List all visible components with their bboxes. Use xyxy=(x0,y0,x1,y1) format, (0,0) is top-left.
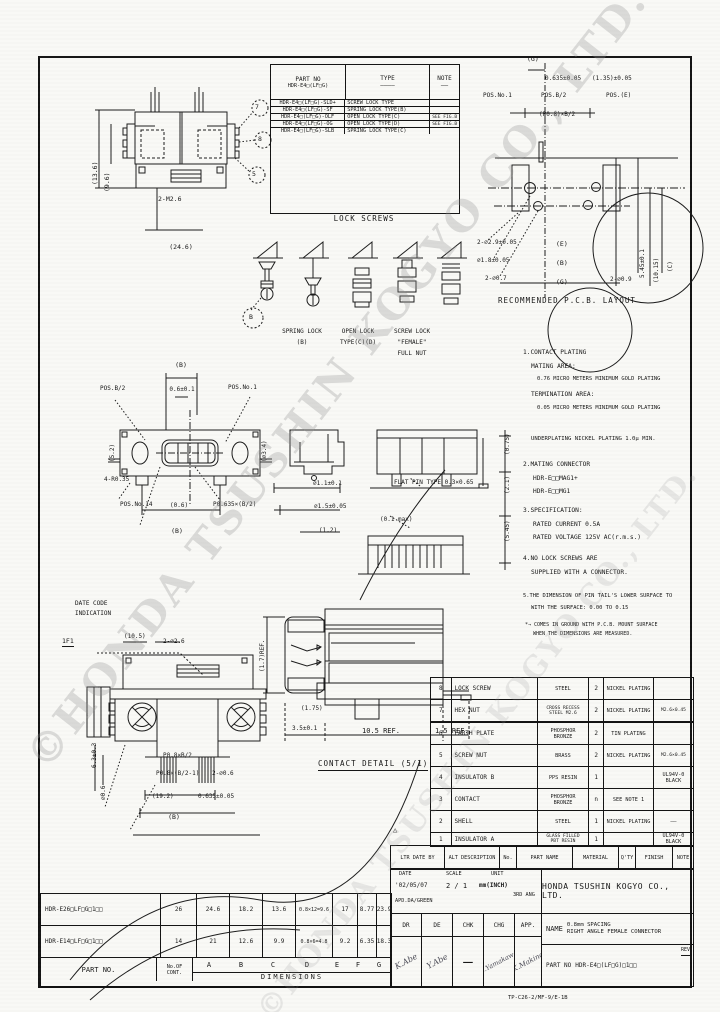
projection-value: 3RD ANG xyxy=(513,893,535,899)
screw-fig-3 xyxy=(348,242,378,307)
part-row-note xyxy=(654,678,693,699)
dimensions-table: HDR-E26□LF□G□1□□ 26 24.6 18.2 13.6 0.8×1… xyxy=(40,893,392,987)
dim-row-f: 8.77 xyxy=(358,894,377,925)
front-pos-no14: POS.No.14 xyxy=(120,502,153,509)
dim-header-cont2: CONT. xyxy=(167,970,183,976)
flat-pin-label: FLAT PIN TYPE 0.3×0.65 xyxy=(394,480,473,487)
note-line: WHEN THE DIMENSIONS ARE MEASURED. xyxy=(533,632,632,638)
part-row-material: STEEL xyxy=(538,811,590,832)
dim-row-n: 26 xyxy=(161,894,197,925)
topview-dim-96: (9.6) xyxy=(104,172,111,192)
rear-dim-2d26: 2-⌀2.6 xyxy=(163,639,185,646)
part-row-material-2: BRONZE xyxy=(554,734,573,740)
chg-header: CHG xyxy=(484,914,515,936)
strip-alt-description: ALT DESCRIPTION xyxy=(445,846,500,869)
part-row-name: INSULATOR A xyxy=(452,833,538,845)
strip-part-name: PART NAME xyxy=(517,846,573,869)
dim-row-d: 0.8×6=4.8 xyxy=(296,926,333,957)
caption-open-lock-type: TYPE(C)(D) xyxy=(340,340,376,347)
topview-dim-136: (13.6) xyxy=(92,162,99,185)
pcb-dim-0635: 0.635±0.05 xyxy=(545,76,581,83)
dim-col-d: D xyxy=(289,958,325,972)
lock-table-header-type-dash: ———— xyxy=(380,82,394,89)
dr-header: DR xyxy=(391,914,422,936)
app-header: APP. xyxy=(515,914,541,936)
topview-dim-2m26: 2-M2.6 xyxy=(158,196,181,203)
rear-dim-b: (B) xyxy=(168,814,180,821)
rear-dim-192: (19.2) xyxy=(152,794,174,801)
part-row-finish: NICKEL PLATING xyxy=(604,811,654,832)
note-line: 3.SPECIFICATION: xyxy=(523,508,583,515)
dim-row-a: 24.6 xyxy=(197,894,230,925)
caption-screw-lock: SCREW LOCK xyxy=(394,329,430,336)
part-row-finish: NICKEL PLATING xyxy=(604,745,654,766)
front-pos-no1: POS.No.1 xyxy=(228,385,257,392)
signature-dr: K.Abe xyxy=(393,952,419,971)
front-dim-p0635: P0.635×(B/2) xyxy=(213,502,256,509)
caption-spring-lock-b: (B) xyxy=(297,340,308,347)
contact-dim-15: 1.5 REF. xyxy=(435,727,469,735)
unit-value: mm(INCH) xyxy=(479,883,508,890)
note-line: HDR-E□□MG1 xyxy=(533,489,570,496)
dim-row-e: 17 xyxy=(333,894,358,925)
pcb-pos-b2: POS.B/2 xyxy=(541,93,566,100)
detail-balloon-b: B xyxy=(249,314,253,321)
revision-header-strip: LTR DATE BY ALT DESCRIPTION No. PART NAM… xyxy=(390,845,694,870)
note-line: 4.NO LOCK SCREWS ARE xyxy=(523,556,598,563)
balloon-7: 7 xyxy=(255,104,259,111)
note-line: 5.THE DIMENSION OF PIN TAIL'S LOWER SURF… xyxy=(523,594,672,600)
pcb-layout-caption: RECOMMENDED P.C.B. LAYOUT xyxy=(498,297,636,306)
lock-row-type: SPRING LOCK TYPE(C) xyxy=(345,128,430,134)
lock-screw-figures xyxy=(245,238,473,338)
dim-row-b: 18.2 xyxy=(230,894,263,925)
rear-dim-105: (10.5) xyxy=(124,634,146,641)
front-dim-b-top: (B) xyxy=(175,362,187,369)
strip-qty: Q'TY xyxy=(619,846,636,869)
side-dim-d11: ⌀1.1±0.1 xyxy=(313,481,342,488)
part-row-finish xyxy=(604,833,654,845)
strip-ltr-date-by: LTR DATE BY xyxy=(391,846,445,869)
front-dim-52: (5.2) xyxy=(110,444,117,462)
dim-row-g: 23.9 xyxy=(377,894,391,925)
strip-no: No. xyxy=(500,846,517,869)
part-row-name: LOCK SCREW xyxy=(452,678,538,699)
pcb-dim-b: (B) xyxy=(556,260,568,267)
pcb-pos-e: POS.(E) xyxy=(606,93,631,100)
strip-material: MATERIAL xyxy=(573,846,619,869)
dim-row-part: HDR-E14□LF□G□1□□ xyxy=(41,926,161,957)
part-row-note: UL94V-0 BLACK xyxy=(654,767,693,788)
part-row-material: BRASS xyxy=(538,745,590,766)
dim-row-n: 14 xyxy=(161,926,197,957)
parts-list-table: 8 LOCK SCREW STEEL 2 NICKEL PLATING 7 HE… xyxy=(430,677,694,847)
front-view-drawing xyxy=(100,355,285,545)
dim-header-partno: PART NO. xyxy=(41,958,157,981)
lock-row-note: SEE FIG.B xyxy=(430,121,459,127)
part-row-note: M2.6×0.45 xyxy=(654,700,693,721)
note-line: SUPPLIED WITH A CONNECTOR. xyxy=(531,570,628,577)
part-row-finish: TIN PLATING xyxy=(604,723,654,744)
part-row-no: 3 xyxy=(431,789,452,810)
contact-detail-caption: CONTACT DETAIL (5/1) xyxy=(318,760,428,771)
caption-open-lock: OPEN LOCK xyxy=(342,329,375,336)
pcb-dim-d18: ⌀1.8±0.05 xyxy=(477,258,510,265)
part-row-qty: 2 xyxy=(589,678,604,699)
part-row-material-2: BRONZE xyxy=(554,800,573,806)
scale-value: 2 / 1 xyxy=(446,882,467,890)
front-dim-4r035: 4-R0.35 xyxy=(104,477,129,484)
contact-dim-17ref: (1.7)REF. xyxy=(260,639,267,672)
dim-col-f: F xyxy=(349,958,367,972)
scale-header: SCALE xyxy=(446,872,462,878)
unit-header: UNIT xyxy=(491,872,504,878)
part-name-line2: RIGHT ANGLE FEMALE CONNECTOR xyxy=(567,929,661,936)
pcb-dim-2d09: 2-⌀0.9 xyxy=(610,277,632,284)
rev-label: REV xyxy=(681,948,690,956)
strip-note: NOTE xyxy=(673,846,693,869)
side-view-drawing xyxy=(270,408,515,598)
date-code-label-2: INDICATION xyxy=(75,611,111,618)
dim-row-part: HDR-E26□LF□G□1□□ xyxy=(41,894,161,925)
side-dim-12: (1.2) xyxy=(319,528,337,535)
note-line: 0.05 MICRO METERS MINIMUM GOLD PLATING xyxy=(537,406,660,412)
dim-row-c: 9.9 xyxy=(263,926,296,957)
note-line: RATED CURRENT 0.5A xyxy=(533,522,600,529)
subline-value: APD.DA/GREEN xyxy=(395,899,432,905)
part-row-note xyxy=(654,789,693,810)
part-row-no: 1 xyxy=(431,833,452,845)
rear-dim-63: 6.3±0.3 xyxy=(92,743,99,768)
signature-de: Y.Abe xyxy=(425,952,449,970)
side-dim-d15: ⌀1.5±0.05 xyxy=(314,504,347,511)
pcb-pos-no1: POS.No.1 xyxy=(483,93,512,100)
dim-col-e: E xyxy=(325,958,349,972)
footer-document-code: TP-C26-2/MF-9/E-1B xyxy=(508,995,568,1001)
part-row-no: 2 xyxy=(431,811,452,832)
part-row-qty: n xyxy=(589,789,604,810)
side-dim-01max: (0.1 max) xyxy=(380,517,413,524)
balloon-8: 8 xyxy=(258,136,262,143)
front-pos-b2: POS.B/2 xyxy=(100,386,125,393)
dim-col-a: A xyxy=(193,958,225,972)
lock-row-part: HDR-E4□(LF□G)-SF xyxy=(271,107,345,113)
pcb-dim-g: (G) xyxy=(556,279,568,286)
part-name-line1: 0.8mm SPACING xyxy=(567,922,661,929)
note-line: RATED VOLTAGE 125V AC(r.m.s.) xyxy=(533,535,641,542)
dim-row-d: 0.8×12=9.6 xyxy=(296,894,333,925)
lock-screws-table: PART NO HDR-E4□(LF□G) TYPE ———— NOTE —— … xyxy=(270,64,460,214)
part-row-name: CONTACT xyxy=(452,789,538,810)
part-row-qty: 2 xyxy=(589,700,604,721)
lock-screws-caption: LOCK SCREWS xyxy=(334,215,395,224)
dim-row-g: 18.3 xyxy=(377,926,391,957)
note-line: UNDERPLATING NICKEL PLATING 1.0μ MIN. xyxy=(531,436,656,442)
note-line: TERMINATION AREA: xyxy=(531,392,594,399)
dimensions-label: DIMENSIONS xyxy=(193,973,391,981)
date-code-value: 1F1 xyxy=(62,638,74,647)
part-row-finish xyxy=(604,767,654,788)
pcb-dim-g-top: (G) xyxy=(527,56,539,63)
part-row-finish: SEE NOTE 1 xyxy=(604,789,654,810)
de-header: DE xyxy=(422,914,453,936)
strip-finish: FINISH xyxy=(636,846,673,869)
lock-row-part: HDR-E4□(LF□G)-SLD+ xyxy=(271,100,345,106)
screw-fig-4 xyxy=(393,242,423,302)
date-code-label-1: DATE CODE xyxy=(75,601,108,608)
lock-row-note: SEE FIG.B xyxy=(430,114,459,120)
note-line: *→ COMES IN GROUND WITH P.C.B. MOUNT SUR… xyxy=(525,623,657,629)
signature-app: K.Makino xyxy=(515,950,541,973)
partno-header: PART NO xyxy=(542,962,575,969)
caption-spring-lock: SPRING LOCK xyxy=(282,329,322,336)
screw-fig-2 xyxy=(299,242,329,306)
part-row-qty: 1 xyxy=(589,811,604,832)
part-row-qty: 1 xyxy=(589,833,604,845)
side-dim-545: (5.45) xyxy=(505,520,512,542)
dim-col-c: C xyxy=(257,958,289,972)
lock-row-type: SPRING LOCK TYPE(B) xyxy=(345,107,430,113)
topview-drawing xyxy=(85,80,275,260)
lock-table-header-partno2: HDR-E4□(LF□G) xyxy=(288,83,329,89)
lock-row-part: HDR-E4□(LF□G)-SLB xyxy=(271,128,345,134)
part-row-name: INSULATOR B xyxy=(452,767,538,788)
pcb-dim-2d29: 2-⌀2.9±0.05 xyxy=(477,240,517,247)
note-line: HDR-E□□MAG1+ xyxy=(533,476,578,483)
signature-chg: S.Yamakawa xyxy=(484,948,515,974)
caption-screw-lock-female: "FEMALE" xyxy=(398,340,427,347)
contact-dim-35: 3.5±0.1 xyxy=(292,726,317,733)
dim-row-f: 6.35 xyxy=(358,926,377,957)
lock-table-header-note-dash: —— xyxy=(441,82,448,89)
lock-table-header-partno: PART NO xyxy=(295,76,320,83)
date-value: '02/05/07 xyxy=(395,883,428,890)
pcb-dim-p08: (P0.8)×B/2 xyxy=(539,112,575,119)
dim-row-e: 9.2 xyxy=(333,926,358,957)
part-row-note: M2.6×0.45 xyxy=(654,745,693,766)
front-dim-b-bot: (B) xyxy=(171,528,183,535)
pcb-dim-2d07: 2-⌀0.7 xyxy=(485,276,507,283)
dim-row-a: 21 xyxy=(197,926,230,957)
pcb-dim-1015: (10.15) xyxy=(654,258,661,283)
revision-triangle: △ xyxy=(393,826,397,834)
part-row-name: HEX NUT xyxy=(452,700,538,721)
part-row-material-2: STEEL M2.6 xyxy=(549,711,577,716)
note-line: WITH THE SURFACE: 0.00 TO 0.15 xyxy=(531,606,628,612)
dim-col-g: G xyxy=(367,958,391,972)
part-row-qty: 2 xyxy=(589,723,604,744)
part-row-note xyxy=(654,723,693,744)
lock-row-part: HDR-E4□(LF□G)-OLF xyxy=(271,114,345,120)
drawing-sheet: ©HONDA TSUSHIN KOGYO CO., LTD. ©HONDA TS… xyxy=(0,0,720,1012)
rear-dim-d06: ⌀0.6 xyxy=(101,786,108,800)
part-row-no: 7 xyxy=(431,700,452,721)
signature-chk: — xyxy=(463,952,473,971)
balloon-5: 5 xyxy=(252,171,256,178)
rear-dim-2d06: 2-⌀0.6 xyxy=(212,771,234,778)
rear-dim-0635: 0.635±0.05 xyxy=(198,794,234,801)
contact-dim-105: 10.5 REF. xyxy=(362,727,400,735)
part-row-note: UL94V-0 BLACK xyxy=(654,833,693,845)
contact-dim-175: (1.75) xyxy=(301,706,323,713)
part-row-name: SCREW NUT xyxy=(452,745,538,766)
pcb-dim-c: (C) xyxy=(668,261,675,272)
notes-block: 1.CONTACT PLATING MATING AREA: 0.76 MICR… xyxy=(523,346,701,646)
lock-table-header-note: NOTE xyxy=(437,75,451,82)
note-line: MATING AREA: xyxy=(531,364,576,371)
front-dim-06: 0.6±0.1 xyxy=(169,387,194,394)
part-row-material-2: PBT RESIN xyxy=(551,839,576,844)
note-line: 2.MATING CONNECTOR xyxy=(523,462,590,469)
part-row-qty: 2 xyxy=(589,745,604,766)
lock-row-type: OPEN LOCK TYPE(C) xyxy=(345,114,430,120)
dim-col-b: B xyxy=(225,958,257,972)
date-header: DATE xyxy=(399,872,412,878)
lock-row-type: SCREW LOCK TYPE xyxy=(345,100,430,106)
part-row-material: PPS RESIN xyxy=(538,767,590,788)
company-name: HONDA TSUSHIN KOGYO CO., LTD. xyxy=(542,882,693,900)
part-row-finish: NICKEL PLATING xyxy=(604,700,654,721)
part-row-note: —— xyxy=(654,811,693,832)
chk-header: CHK xyxy=(453,914,484,936)
partno-value: HDR-E4□(LF□G)□1□□ xyxy=(575,962,636,969)
lock-row-note xyxy=(430,100,459,106)
lock-row-type: OPEN LOCK TYPE(D) xyxy=(345,121,430,127)
dim-row-b: 12.6 xyxy=(230,926,263,957)
name-header: NAME xyxy=(542,925,567,933)
pcb-dim-e: (E) xyxy=(556,241,568,248)
part-row-no: 4 xyxy=(431,767,452,788)
part-row-name: SHELL xyxy=(452,811,538,832)
lock-row-note xyxy=(430,128,459,134)
part-row-qty: 1 xyxy=(589,767,604,788)
note-line: 0.76 MICRO METERS MINIMUM GOLD PLATING xyxy=(537,377,660,383)
caption-screw-lock-fullnut: FULL NUT xyxy=(398,351,427,358)
part-row-no: 8 xyxy=(431,678,452,699)
title-block: DATE SCALE UNIT '02/05/07 2 / 1 mm(INCH)… xyxy=(390,868,694,987)
topview-dim-246: (24.6) xyxy=(169,244,192,251)
side-dim-075: (0.75) xyxy=(505,433,512,455)
lock-table-header-type: TYPE xyxy=(380,75,394,82)
part-row-no: 5 xyxy=(431,745,452,766)
dim-row-c: 13.6 xyxy=(263,894,296,925)
front-dim-06b: (0.6) xyxy=(170,503,188,510)
lock-row-note xyxy=(430,107,459,113)
part-row-material: STEEL xyxy=(555,686,571,692)
side-dim-21: (2.1) xyxy=(505,476,512,494)
part-row-finish: NICKEL PLATING xyxy=(604,678,654,699)
rear-dim-p08a: P0.8×B/2 xyxy=(163,753,192,760)
front-dim-d34: (⌀3.4) xyxy=(262,440,269,462)
note-line: 1.CONTACT PLATING xyxy=(523,350,586,357)
lock-row-part: HDR-E4□(LF□G)-OG xyxy=(271,121,345,127)
rear-dim-p08b: P0.8×(B/2-1) xyxy=(156,771,199,778)
screw-fig-5 xyxy=(437,242,467,304)
pcb-dim-135: (1.35)±0.05 xyxy=(592,76,632,83)
pcb-dim-545: 5.45±0.1 xyxy=(640,249,647,278)
